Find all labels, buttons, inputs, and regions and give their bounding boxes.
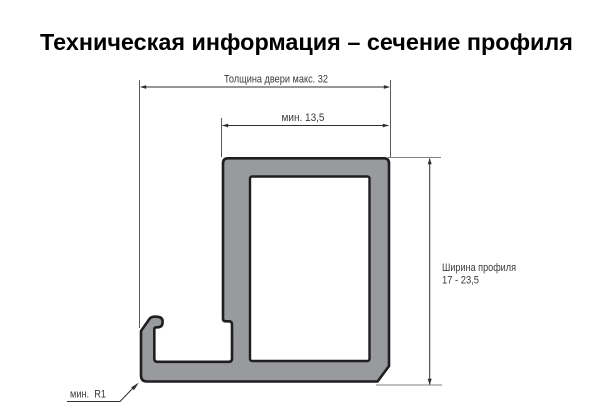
svg-text:мин. R1: мин. R1 bbox=[70, 389, 106, 401]
svg-text:мин. 13,5: мин. 13,5 bbox=[282, 112, 325, 124]
svg-text:Толщина двери макс. 32: Толщина двери макс. 32 bbox=[224, 74, 328, 86]
svg-text:Ширина профиля: Ширина профиля bbox=[442, 262, 516, 274]
svg-text:17 - 23,5: 17 - 23,5 bbox=[442, 275, 479, 287]
